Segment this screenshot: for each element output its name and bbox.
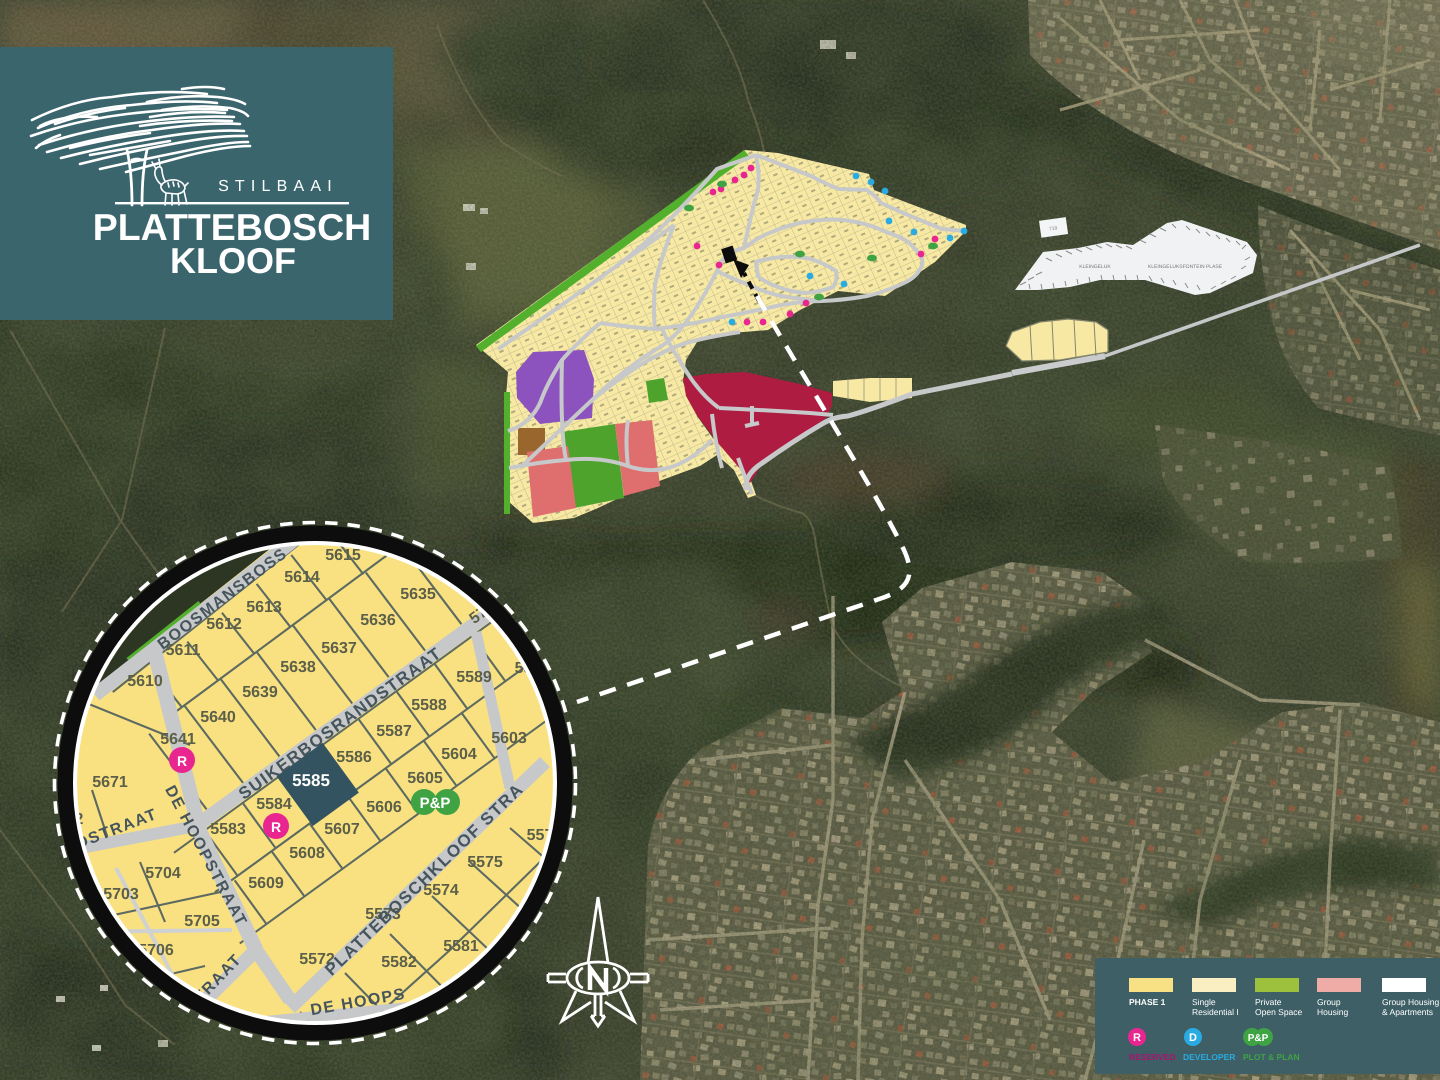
- svg-text:KLEINGELUK: KLEINGELUK: [1079, 264, 1111, 270]
- svg-text:719: 719: [1049, 225, 1058, 232]
- svg-text:DEVELOPER: DEVELOPER: [1183, 1052, 1235, 1062]
- svg-text:5610: 5610: [127, 673, 163, 690]
- svg-text:5604: 5604: [441, 746, 477, 763]
- svg-text:5671: 5671: [92, 774, 128, 791]
- svg-text:Housing: Housing: [1317, 1007, 1348, 1017]
- svg-text:5609: 5609: [248, 875, 284, 892]
- svg-text:5705: 5705: [184, 913, 220, 930]
- svg-text:5588: 5588: [411, 697, 447, 714]
- svg-text:R: R: [271, 819, 281, 835]
- svg-text:5586: 5586: [336, 749, 372, 766]
- svg-text:5581: 5581: [443, 938, 479, 955]
- svg-text:Group: Group: [1317, 997, 1341, 1007]
- svg-text:5703: 5703: [103, 886, 139, 903]
- svg-text:Open Space: Open Space: [1255, 1007, 1303, 1017]
- svg-text:5606: 5606: [366, 799, 402, 816]
- svg-text:Group Housing: Group Housing: [1382, 997, 1439, 1007]
- svg-text:5612: 5612: [206, 616, 242, 633]
- svg-text:KLEINGELUKSFONTEIN PLASE: KLEINGELUKSFONTEIN PLASE: [1148, 264, 1223, 270]
- svg-text:P&P: P&P: [420, 795, 451, 812]
- svg-text:5641: 5641: [160, 731, 196, 748]
- svg-text:5605: 5605: [407, 770, 443, 787]
- svg-text:RESERVED: RESERVED: [1129, 1052, 1176, 1062]
- svg-text:5613: 5613: [246, 599, 282, 616]
- svg-text:5640: 5640: [200, 709, 236, 726]
- svg-text:D: D: [1189, 1032, 1197, 1044]
- svg-text:5636: 5636: [360, 612, 396, 629]
- svg-text:5589: 5589: [456, 669, 492, 686]
- svg-text:KLOOF: KLOOF: [170, 240, 296, 281]
- svg-text:5584: 5584: [256, 796, 292, 813]
- svg-text:5639: 5639: [242, 684, 278, 701]
- svg-text:5608: 5608: [289, 845, 325, 862]
- svg-text:& Apartments: & Apartments: [1382, 1007, 1433, 1017]
- svg-text:5638: 5638: [280, 659, 316, 676]
- svg-text:R: R: [1133, 1032, 1141, 1044]
- svg-text:5583: 5583: [210, 821, 246, 838]
- svg-text:5637: 5637: [321, 640, 357, 657]
- svg-text:R: R: [177, 753, 187, 769]
- svg-text:5704: 5704: [145, 865, 181, 882]
- svg-text:5585: 5585: [292, 771, 330, 790]
- svg-text:P&P: P&P: [1248, 1033, 1269, 1044]
- svg-text:5615: 5615: [325, 547, 361, 564]
- svg-text:5607: 5607: [324, 821, 360, 838]
- svg-text:5635: 5635: [400, 586, 436, 603]
- svg-text:5603: 5603: [491, 730, 527, 747]
- svg-text:Residential I: Residential I: [1192, 1007, 1239, 1017]
- svg-text:Single: Single: [1192, 997, 1216, 1007]
- svg-text:Private: Private: [1255, 997, 1282, 1007]
- svg-text:5614: 5614: [284, 569, 320, 586]
- svg-text:5582: 5582: [381, 954, 417, 971]
- svg-text:5575: 5575: [467, 854, 503, 871]
- svg-text:STILBAAI: STILBAAI: [218, 178, 338, 195]
- svg-text:5587: 5587: [376, 723, 412, 740]
- svg-text:PLOT & PLAN: PLOT & PLAN: [1243, 1052, 1300, 1062]
- svg-text:PHASE 1: PHASE 1: [1129, 997, 1166, 1007]
